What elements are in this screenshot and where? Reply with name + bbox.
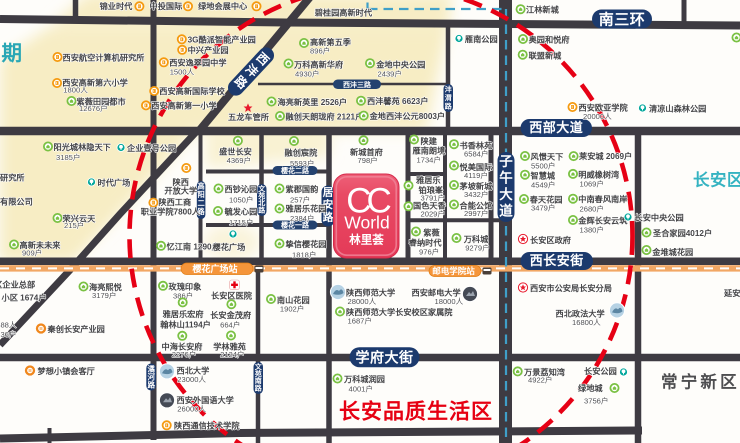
- svg-text:西安高新国际学校: 西安高新国际学校: [159, 86, 225, 96]
- svg-text:西沣三路: 西沣三路: [343, 80, 372, 89]
- svg-text:紫薇: 紫薇: [423, 228, 440, 238]
- svg-text:西安航空计算机研究所: 西安航空计算机研究所: [63, 52, 146, 62]
- svg-text:西安逸翠园中学: 西安逸翠园中学: [169, 58, 226, 68]
- svg-text:9279户: 9279户: [465, 242, 490, 252]
- svg-text:中兴产业园: 中兴产业园: [188, 45, 229, 55]
- svg-text:明威橡树湾: 明威橡树湾: [578, 169, 620, 179]
- svg-text:1715户: 1715户: [229, 217, 254, 227]
- svg-text:2384户: 2384户: [290, 213, 315, 223]
- svg-text:学府大街: 学府大街: [356, 349, 414, 365]
- svg-text:3G酷派智能产业园: 3G酷派智能产业园: [188, 35, 256, 45]
- svg-text:风憬天下: 风憬天下: [531, 151, 564, 161]
- svg-text:陕西师范大学: 陕西师范大学: [346, 287, 395, 297]
- svg-text:2029户: 2029户: [421, 208, 446, 218]
- svg-text:莱安城 2069户: 莱安城 2069户: [579, 151, 632, 161]
- svg-text:陕西通信技术学院: 陕西通信技术学院: [174, 421, 240, 431]
- svg-text:12676户: 12676户: [79, 103, 108, 113]
- svg-text:常宁新区: 常宁新区: [661, 372, 740, 392]
- svg-text:文苑北路: 文苑北路: [257, 184, 266, 215]
- svg-text:碧桂园高新时代: 碧桂园高新时代: [314, 8, 373, 18]
- svg-text:西安市公安局长安分局: 西安市公安局长安分局: [530, 283, 612, 293]
- svg-text:联盟新城: 联盟新城: [529, 50, 563, 60]
- svg-text:雁南公园: 雁南公园: [465, 34, 498, 44]
- svg-text:绿地城: 绿地城: [578, 383, 603, 393]
- svg-text:邮电学院站: 邮电学院站: [432, 266, 475, 276]
- svg-text:陕建: 陕建: [421, 136, 438, 146]
- svg-text:215户: 215户: [64, 220, 84, 230]
- svg-text:4930户: 4930户: [295, 68, 320, 78]
- svg-text:18000人: 18000人: [435, 297, 464, 306]
- svg-text:3479户: 3479户: [531, 203, 556, 213]
- svg-text:5500户: 5500户: [531, 161, 556, 171]
- svg-text:万科城润园: 万科城润园: [343, 374, 385, 384]
- svg-text:锦业时代: 锦业时代: [100, 1, 134, 11]
- svg-text:1380户: 1380户: [580, 224, 605, 234]
- svg-text:1800人: 1800人: [63, 86, 88, 95]
- svg-text:2276户: 2276户: [172, 349, 197, 359]
- svg-text:长安品质生活区: 长安品质生活区: [339, 400, 493, 424]
- svg-text:林里荟: 林里荟: [349, 233, 384, 247]
- svg-text:3179户: 3179户: [92, 290, 117, 300]
- svg-text:西安高新第一小学: 西安高新第一小学: [151, 101, 217, 111]
- svg-text:1050户: 1050户: [229, 194, 254, 204]
- svg-text:西安外国语大学: 西安外国语大学: [177, 395, 234, 405]
- svg-text:16800人: 16800人: [572, 318, 601, 327]
- svg-text:6584户: 6584户: [464, 149, 489, 159]
- svg-text:阳光城林隐天下: 阳光城林隐天下: [54, 142, 111, 152]
- svg-text:西安邮电大学: 西安邮电大学: [412, 287, 461, 297]
- svg-text:909户: 909户: [22, 248, 42, 258]
- svg-text:睿纳时代: 睿纳时代: [409, 238, 443, 248]
- svg-text:梦想小镇会客厅: 梦想小镇会客厅: [37, 366, 95, 376]
- svg-text:西钞沁园: 西钞沁园: [225, 184, 258, 194]
- svg-text:4922户: 4922户: [528, 375, 553, 385]
- svg-text:4369户: 4369户: [227, 155, 252, 165]
- svg-text:雁南朗境: 雁南朗境: [413, 146, 446, 156]
- svg-text:26000人: 26000人: [177, 404, 206, 413]
- svg-text:雅居乐宏府: 雅居乐宏府: [162, 309, 204, 319]
- svg-text:896户: 896户: [310, 46, 330, 56]
- svg-text:毓发心园: 毓发心园: [225, 206, 258, 216]
- svg-text:23000人: 23000人: [177, 375, 206, 384]
- svg-text:长安中央公园: 长安中央公园: [635, 212, 684, 222]
- svg-text:金地西沣公元8003户: 金地西沣公元8003户: [369, 111, 446, 121]
- svg-text:陕西: 陕西: [173, 177, 189, 187]
- svg-text:长安区医院: 长安区医院: [211, 291, 253, 301]
- svg-text:2997户: 2997户: [464, 208, 489, 218]
- svg-text:玫瑰印象: 玫瑰印象: [169, 281, 203, 291]
- svg-text:研究所: 研究所: [0, 172, 25, 182]
- svg-text:企业壹号公园: 企业壹号公园: [126, 143, 176, 153]
- svg-text:樱花广场站: 樱花广场站: [191, 263, 237, 274]
- svg-text:3756户: 3756户: [584, 396, 609, 406]
- svg-text:西长安街: 西长安街: [530, 253, 584, 268]
- svg-text:西沣馨苑 6623户: 西沣馨苑 6623户: [367, 96, 428, 106]
- svg-text:融创天朗珑府 2121户: 融创天朗珑府 2121户: [286, 112, 364, 122]
- svg-text:664户: 664户: [220, 319, 240, 329]
- svg-text:西安欧亚学院: 西安欧亚学院: [579, 102, 629, 112]
- svg-text:1734户: 1734户: [417, 155, 442, 165]
- svg-text:雅居乐: 雅居乐: [415, 175, 441, 185]
- svg-text:潏河路: 潏河路: [147, 364, 155, 390]
- svg-text:盛世长安: 盛世长安: [219, 147, 252, 157]
- svg-text:万科高新华府: 万科高新华府: [293, 60, 343, 70]
- svg-text:西部大道: 西部大道: [529, 120, 583, 135]
- svg-text:圣合家园4012户: 圣合家园4012户: [652, 228, 712, 238]
- svg-text:长安金茂府: 长安金茂府: [210, 310, 251, 320]
- svg-text:五龙车管所: 五龙车管所: [228, 112, 270, 122]
- svg-text:金地中央公园: 金地中央公园: [375, 60, 425, 70]
- svg-text:开放大学: 开放大学: [164, 186, 197, 196]
- svg-text:长安区政府: 长安区政府: [530, 235, 571, 245]
- svg-text:江林新城: 江林新城: [526, 4, 560, 14]
- svg-text:沣渭路: 沣渭路: [445, 85, 453, 111]
- svg-text:小区企业总部: 小区企业总部: [0, 280, 35, 290]
- svg-text:南三环: 南三环: [599, 10, 646, 28]
- svg-text:文苑南路: 文苑南路: [254, 362, 263, 393]
- svg-text:清凉山森林公园: 清凉山森林公园: [649, 103, 706, 113]
- svg-text:南山花园: 南山花园: [277, 295, 310, 305]
- svg-text:时代广场: 时代广场: [98, 178, 131, 188]
- svg-text:金堆城花园: 金堆城花园: [651, 247, 693, 257]
- svg-text:小区 1674户: 小区 1674户: [1, 293, 47, 303]
- svg-text:中投国际: 中投国际: [150, 1, 184, 11]
- svg-text:紫郡国韵: 紫郡国韵: [286, 184, 319, 194]
- svg-text:陕西师范大学长安校区家属院: 陕西师范大学长安校区家属院: [346, 307, 453, 317]
- svg-text:3432户: 3432户: [464, 189, 489, 199]
- svg-text:1902户: 1902户: [280, 303, 305, 313]
- svg-text:海亮新英里 2526户: 海亮新英里 2526户: [278, 97, 348, 107]
- svg-text:2124户: 2124户: [220, 349, 245, 359]
- svg-text:西北大学: 西北大学: [177, 366, 210, 376]
- svg-text:融创宸院: 融创宸院: [285, 148, 319, 158]
- svg-text:28000人: 28000人: [348, 297, 377, 306]
- svg-text:有限公司: 有限公司: [0, 197, 33, 207]
- svg-text:1236户: 1236户: [0, 329, 17, 339]
- svg-text:1500人: 1500人: [170, 67, 195, 76]
- svg-text:雅居乐花园: 雅居乐花园: [285, 204, 327, 214]
- svg-text:翰林山1194户: 翰林山1194户: [160, 319, 211, 329]
- svg-text:秦创长安产业园: 秦创长安产业园: [47, 324, 105, 334]
- svg-text:5593户: 5593户: [290, 158, 315, 168]
- svg-text:金辉长安云筑: 金辉长安云筑: [577, 215, 628, 225]
- svg-text:长安公园: 长安公园: [584, 366, 617, 376]
- svg-text:20000人: 20000人: [583, 112, 612, 121]
- svg-text:绿地会展中心: 绿地会展中心: [198, 1, 248, 11]
- svg-text:子午大道: 子午大道: [499, 154, 513, 219]
- svg-text:4001户: 4001户: [349, 383, 374, 393]
- svg-text:World: World: [344, 213, 389, 233]
- svg-text:智慧城: 智慧城: [530, 171, 556, 181]
- svg-text:4119户: 4119户: [464, 170, 488, 180]
- svg-text:中南春风南岸: 中南春风南岸: [578, 194, 627, 204]
- svg-text:1818户: 1818户: [292, 249, 317, 259]
- svg-text:西北政法大学: 西北政法大学: [556, 308, 605, 318]
- svg-text:976户: 976户: [419, 247, 439, 257]
- svg-text:257户: 257户: [290, 194, 310, 204]
- svg-text:3185户: 3185户: [56, 152, 81, 162]
- svg-text:陕西工商: 陕西工商: [158, 197, 191, 207]
- svg-text:延安大学: 延安大学: [723, 288, 740, 298]
- svg-text:奥园和悦府: 奥园和悦府: [528, 35, 570, 45]
- svg-text:挚信樱花园: 挚信樱花园: [286, 239, 327, 249]
- svg-text:职业学院7800人: 职业学院7800人: [141, 206, 201, 216]
- svg-text:1069户: 1069户: [580, 179, 605, 189]
- svg-text:2439户: 2439户: [378, 69, 403, 79]
- svg-text:期: 期: [2, 42, 23, 65]
- svg-text:2680户: 2680户: [580, 203, 605, 213]
- svg-text:1888人: 1888人: [0, 320, 17, 329]
- svg-text:798户: 798户: [358, 155, 378, 165]
- svg-text:樱花广场: 樱花广场: [213, 242, 246, 252]
- svg-text:1687户: 1687户: [348, 315, 373, 325]
- svg-text:长安区: 长安区: [693, 170, 740, 190]
- svg-text:4549户: 4549户: [531, 180, 556, 190]
